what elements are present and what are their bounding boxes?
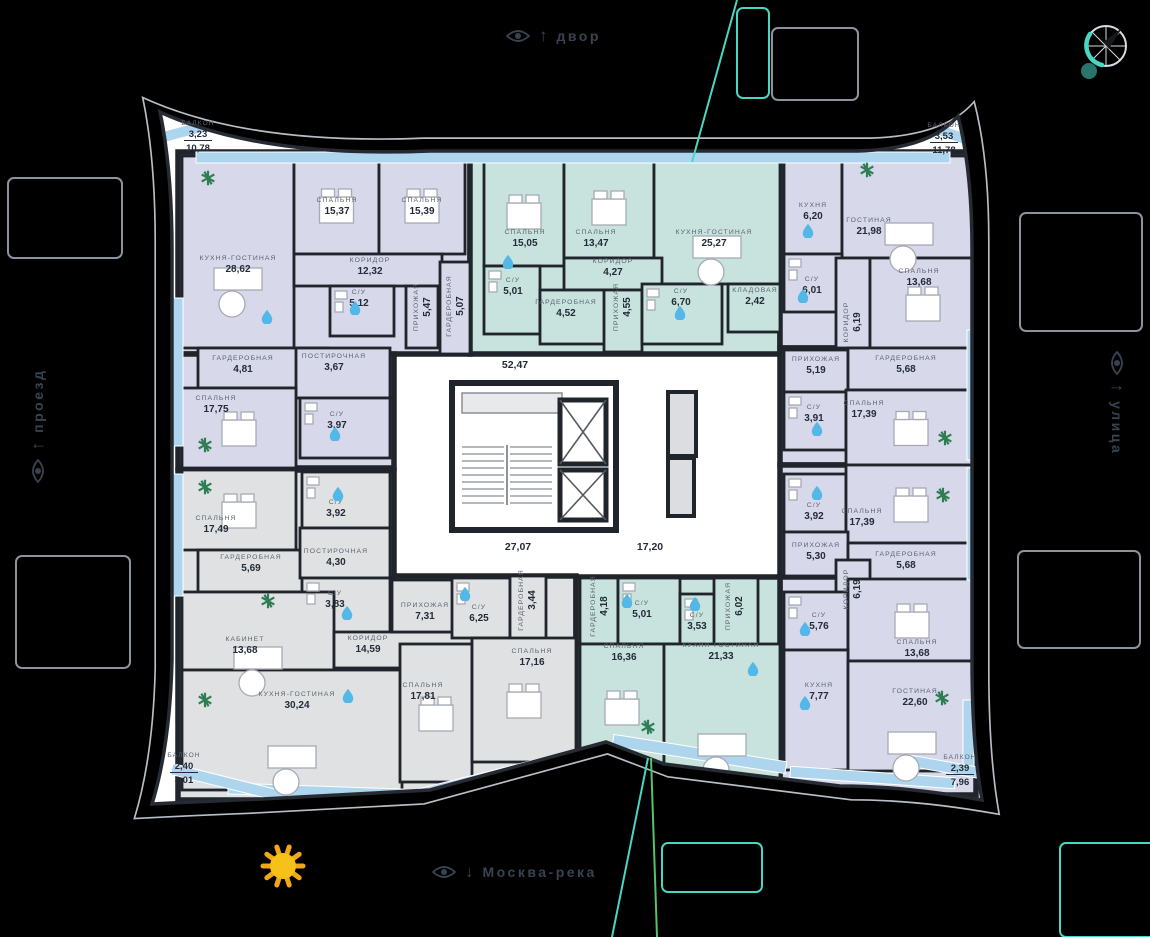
room-area: 17,16 bbox=[519, 657, 544, 668]
room-area: 4,55 bbox=[622, 297, 633, 317]
room-area: 5,07 bbox=[455, 296, 466, 316]
site-building-outline bbox=[1060, 843, 1150, 937]
floor-plan: КУХНЯ-ГОСТИНАЯ28,62СПАЛЬНЯ15,37СПАЛЬНЯ15… bbox=[0, 0, 1150, 937]
bed bbox=[419, 705, 453, 731]
room-area: 5,01 bbox=[632, 609, 652, 620]
room-name: СПАЛЬНЯ bbox=[317, 197, 358, 204]
eye-icon bbox=[506, 29, 530, 43]
bed bbox=[894, 420, 928, 446]
room-area: 28,62 bbox=[225, 264, 250, 275]
core-lobby bbox=[462, 393, 562, 413]
room-name: С/У bbox=[674, 288, 688, 295]
svg-text:10,78: 10,78 bbox=[186, 143, 210, 154]
hall-area: 17,20 bbox=[637, 541, 663, 553]
room-area: 5,47 bbox=[422, 297, 433, 317]
site-building-outline bbox=[737, 8, 769, 98]
room-label: С/У3,83 bbox=[325, 590, 345, 610]
room-area: 17,49 bbox=[203, 524, 228, 535]
svg-text:2,40: 2,40 bbox=[175, 761, 194, 772]
leader-line bbox=[651, 758, 657, 937]
room-area: 3,53 bbox=[687, 621, 707, 632]
site-building-outline bbox=[1020, 213, 1142, 331]
room-name: СПАЛЬНЯ bbox=[604, 643, 645, 650]
bed bbox=[507, 203, 541, 229]
site-building-outline bbox=[662, 843, 762, 892]
room bbox=[836, 258, 870, 348]
room-name: КУХНЯ bbox=[805, 682, 833, 689]
wc bbox=[789, 270, 797, 280]
room-area: 7,31 bbox=[415, 611, 435, 622]
room-name: С/У bbox=[635, 600, 649, 607]
room-name: ГАРДЕРОБНАЯ bbox=[875, 355, 937, 362]
room-area: 17,39 bbox=[851, 409, 876, 420]
room-name: С/У bbox=[506, 277, 520, 284]
room bbox=[182, 156, 294, 348]
orientation-text: проезд bbox=[30, 369, 46, 433]
stairs bbox=[462, 445, 552, 505]
svg-text:БАЛКОН: БАЛКОН bbox=[181, 120, 214, 127]
site-building-outline bbox=[16, 556, 130, 668]
sink bbox=[789, 259, 801, 267]
sink bbox=[307, 583, 319, 591]
room-name: С/У bbox=[352, 289, 366, 296]
room-area: 5,76 bbox=[809, 621, 829, 632]
room-area: 17,39 bbox=[849, 517, 874, 528]
table bbox=[893, 755, 919, 781]
hall-area: 27,07 bbox=[505, 541, 531, 553]
room-area: 3,44 bbox=[527, 590, 538, 610]
room-area: 13,68 bbox=[232, 645, 257, 656]
table bbox=[273, 769, 299, 795]
room-name: С/У bbox=[690, 612, 704, 619]
room-label: С/У3,53 bbox=[687, 612, 707, 632]
site-building-outline bbox=[772, 28, 858, 100]
bed bbox=[507, 692, 541, 718]
room-name: СПАЛЬНЯ bbox=[403, 682, 444, 689]
svg-text:БАЛКОН: БАЛКОН bbox=[167, 752, 200, 759]
room-area: 5,68 bbox=[896, 364, 916, 375]
room-label: С/У3,91 bbox=[804, 404, 824, 424]
floorplan-view: КУХНЯ-ГОСТИНАЯ28,62СПАЛЬНЯ15,37СПАЛЬНЯ15… bbox=[0, 0, 1150, 937]
room-area: 5,69 bbox=[241, 563, 261, 574]
svg-text:БАЛКОН: БАЛКОН bbox=[927, 122, 960, 129]
room-label: С/У5,76 bbox=[809, 612, 829, 632]
leader-line bbox=[612, 758, 648, 937]
room-name: СПАЛЬНЯ bbox=[576, 229, 617, 236]
room-area: 5,19 bbox=[806, 365, 826, 376]
room-area: 4,30 bbox=[326, 557, 346, 568]
room-name: СПАЛЬНЯ bbox=[844, 400, 885, 407]
room-name: ГАРДЕРОБНАЯ bbox=[590, 575, 597, 637]
bed bbox=[592, 199, 626, 225]
room-area: 6,02 bbox=[734, 596, 745, 616]
room-name: С/У bbox=[805, 276, 819, 283]
room-name: С/У bbox=[328, 590, 342, 597]
wc bbox=[307, 488, 315, 498]
sofa bbox=[268, 746, 316, 768]
wc bbox=[305, 414, 313, 424]
room-name: КОРИДОР bbox=[843, 302, 850, 343]
eye-icon bbox=[31, 459, 45, 483]
room-area: 3,92 bbox=[804, 511, 824, 522]
orientation-label-left: ↑ проезд bbox=[28, 344, 48, 508]
sofa bbox=[888, 732, 936, 754]
room-area: 6,20 bbox=[803, 211, 823, 222]
site-building-outline bbox=[8, 178, 122, 258]
room-name: КУХНЯ-ГОСТИНАЯ bbox=[199, 255, 276, 262]
eye-icon bbox=[432, 865, 456, 879]
balcony-glazing bbox=[173, 298, 183, 446]
table bbox=[219, 291, 245, 317]
sink bbox=[647, 289, 659, 297]
room-area: 30,24 bbox=[284, 700, 309, 711]
room-area: 15,37 bbox=[324, 206, 349, 217]
room-area: 13,68 bbox=[904, 648, 929, 659]
sun-icon bbox=[263, 847, 303, 885]
room-label: С/У5,01 bbox=[503, 277, 523, 297]
room-area: 5,30 bbox=[806, 551, 826, 562]
bed bbox=[894, 496, 928, 522]
room-name: ГОСТИНАЯ bbox=[846, 217, 891, 224]
room-name: ПРИХОЖАЯ bbox=[413, 283, 420, 331]
orientation-label-right: ↑ улица bbox=[1107, 321, 1127, 485]
room-area: 12,32 bbox=[357, 266, 382, 277]
room-area: 21,98 bbox=[856, 226, 881, 237]
room-name: С/У bbox=[807, 502, 821, 509]
balcony-glazing bbox=[196, 152, 950, 163]
room-area: 25,27 bbox=[701, 238, 726, 249]
room-area: 21,33 bbox=[708, 651, 733, 662]
room-name: С/У bbox=[472, 604, 486, 611]
room-name: КОРИДОР bbox=[350, 257, 391, 264]
room-name: КУХНЯ bbox=[799, 202, 827, 209]
compass-dot-icon bbox=[1081, 63, 1097, 79]
room-area: 4,18 bbox=[599, 596, 610, 616]
svg-text:11,78: 11,78 bbox=[932, 145, 955, 156]
room-area: 3,83 bbox=[325, 599, 345, 610]
room-area: 6,19 bbox=[852, 312, 863, 332]
room-name: ПРИХОЖАЯ bbox=[613, 283, 620, 331]
room-area: 4,52 bbox=[556, 308, 576, 319]
room-name: ПРИХОЖАЯ bbox=[792, 542, 840, 549]
sink bbox=[623, 583, 635, 591]
wc bbox=[789, 608, 797, 618]
room-label: С/У3,92 bbox=[326, 499, 346, 519]
room-name: СПАЛЬНЯ bbox=[505, 229, 546, 236]
sink bbox=[335, 291, 347, 299]
room-name: ГАРДЕРОБНАЯ bbox=[875, 551, 937, 558]
wc bbox=[335, 302, 343, 312]
room-name: СПАЛЬНЯ bbox=[196, 395, 237, 402]
room-name: ГАРДЕРОБНАЯ bbox=[535, 299, 597, 306]
room-name: СПАЛЬНЯ bbox=[899, 268, 940, 275]
room-name: КЛАДОВАЯ bbox=[732, 287, 778, 294]
room-name: СПАЛЬНЯ bbox=[402, 197, 443, 204]
room-area: 22,60 bbox=[902, 697, 927, 708]
room-name: ПРИХОЖАЯ bbox=[792, 356, 840, 363]
wc bbox=[647, 300, 655, 310]
orientation-label-top: ↑ двор bbox=[506, 26, 601, 46]
room-label: С/У3,92 bbox=[804, 502, 824, 522]
balcony-glazing bbox=[150, 700, 161, 772]
sink bbox=[789, 397, 801, 405]
direction-arrow-icon: ↑ bbox=[28, 442, 48, 451]
room-name: ПРИХОЖАЯ bbox=[401, 602, 449, 609]
room-name: СПАЛЬНЯ bbox=[196, 515, 237, 522]
room-name: ПРИХОЖАЯ bbox=[725, 582, 732, 630]
room-name: ГОСТИНАЯ bbox=[892, 688, 937, 695]
bed bbox=[895, 612, 929, 638]
room-label: С/У6,25 bbox=[469, 604, 489, 624]
room-area: 4,81 bbox=[233, 364, 253, 375]
room-area: 13,68 bbox=[906, 277, 931, 288]
room-area: 14,59 bbox=[355, 644, 380, 655]
room-area: 5,01 bbox=[503, 286, 523, 297]
svg-text:3,53: 3,53 bbox=[935, 131, 954, 142]
room-area: 17,75 bbox=[203, 404, 228, 415]
room-area: 5,68 bbox=[896, 560, 916, 571]
wc bbox=[789, 408, 797, 418]
site-building-outline bbox=[1018, 551, 1140, 648]
direction-arrow-icon: ↑ bbox=[1107, 384, 1127, 393]
room-area: 6,70 bbox=[671, 297, 691, 308]
sink bbox=[305, 403, 317, 411]
riser-shaft bbox=[668, 392, 696, 456]
bed bbox=[222, 420, 256, 446]
sink bbox=[789, 479, 801, 487]
room-name: ПОСТИРОЧНАЯ bbox=[304, 548, 368, 555]
svg-text:БАЛКОН: БАЛКОН bbox=[943, 754, 976, 761]
room-name: СПАЛЬНЯ bbox=[512, 648, 553, 655]
room-name: ПОСТИРОЧНАЯ bbox=[302, 353, 366, 360]
room-name: КОРИДОР bbox=[843, 569, 850, 610]
wc bbox=[789, 490, 797, 500]
room-name: КОРИДОР bbox=[348, 635, 389, 642]
sink bbox=[489, 271, 501, 279]
room-area: 3,97 bbox=[327, 420, 347, 431]
room-area: 6,25 bbox=[469, 613, 489, 624]
direction-arrow-icon: ↑ bbox=[539, 26, 548, 46]
bed bbox=[605, 699, 639, 725]
hall-area: 52,47 bbox=[502, 359, 528, 371]
room-area: 17,81 bbox=[410, 691, 435, 702]
room-area: 15,05 bbox=[512, 238, 537, 249]
room-area: 13,47 bbox=[583, 238, 608, 249]
eye-icon bbox=[1110, 351, 1124, 375]
svg-text:2,39: 2,39 bbox=[951, 763, 970, 774]
table bbox=[698, 259, 724, 285]
room-name: СПАЛЬНЯ bbox=[897, 639, 938, 646]
room-name: ГАРДЕРОБНАЯ bbox=[212, 355, 274, 362]
room-name: СПАЛЬНЯ bbox=[842, 508, 883, 515]
room-name: КАБИНЕТ bbox=[225, 636, 264, 643]
room-name: С/У bbox=[807, 404, 821, 411]
room-name: КУХНЯ-ГОСТИНАЯ bbox=[258, 691, 335, 698]
room-area: 2,42 bbox=[745, 296, 765, 307]
sink bbox=[789, 597, 801, 605]
room-area: 3,92 bbox=[326, 508, 346, 519]
room-label: С/У6,70 bbox=[671, 288, 691, 308]
compass-icon bbox=[1081, 26, 1126, 79]
room-area: 6,19 bbox=[852, 579, 863, 599]
svg-text:8,01: 8,01 bbox=[175, 775, 194, 786]
orientation-label-bottom: ↓ Москва-река bbox=[432, 862, 597, 882]
sofa bbox=[698, 734, 746, 756]
balcony-glazing bbox=[173, 474, 183, 596]
orientation-text: двор bbox=[557, 28, 601, 44]
bed bbox=[906, 295, 940, 321]
room-name: С/У bbox=[812, 612, 826, 619]
room-name: С/У bbox=[330, 411, 344, 418]
room-area: 7,77 bbox=[809, 691, 829, 702]
room-area: 3,67 bbox=[324, 362, 344, 373]
sink bbox=[307, 477, 319, 485]
room-name: КУХНЯ-ГОСТИНАЯ bbox=[682, 642, 759, 649]
svg-text:3,23: 3,23 bbox=[189, 129, 208, 140]
direction-arrow-icon: ↓ bbox=[465, 862, 474, 882]
svg-text:7,96: 7,96 bbox=[951, 777, 970, 788]
room-name: ГАРДЕРОБНАЯ bbox=[220, 554, 282, 561]
sofa bbox=[885, 223, 933, 245]
room-name: КОРИДОР bbox=[593, 258, 634, 265]
room-name: КУХНЯ-ГОСТИНАЯ bbox=[675, 229, 752, 236]
wc bbox=[307, 594, 315, 604]
orientation-text: улица bbox=[1109, 401, 1125, 455]
room-label: С/У5,01 bbox=[632, 600, 652, 620]
wc bbox=[489, 282, 497, 292]
room-area: 15,39 bbox=[409, 206, 434, 217]
room-area: 3,91 bbox=[804, 413, 824, 424]
room-name: ГАРДЕРОБНАЯ bbox=[446, 275, 453, 337]
room-label: С/У3,97 bbox=[327, 411, 347, 431]
room-area: 16,36 bbox=[611, 652, 636, 663]
room-name: ГАРДЕРОБНАЯ bbox=[518, 569, 525, 631]
orientation-text: Москва-река bbox=[483, 864, 597, 880]
room bbox=[784, 650, 848, 770]
room-area: 4,27 bbox=[603, 267, 623, 278]
riser-shaft bbox=[668, 458, 694, 516]
